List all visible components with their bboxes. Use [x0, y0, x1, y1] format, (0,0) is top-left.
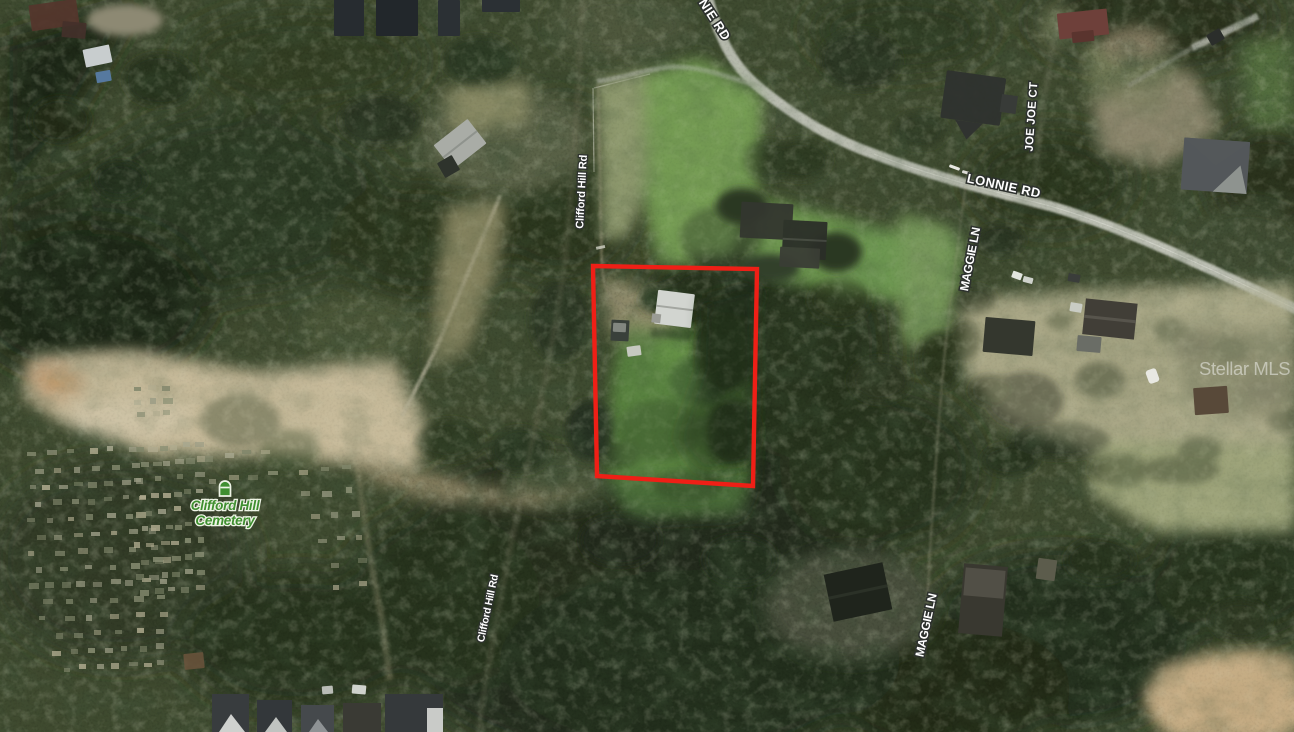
svg-text:Clifford Hill: Clifford Hill — [191, 498, 260, 513]
svg-text:Stellar MLS: Stellar MLS — [1199, 358, 1290, 379]
svg-text:Cemetery: Cemetery — [195, 513, 256, 528]
